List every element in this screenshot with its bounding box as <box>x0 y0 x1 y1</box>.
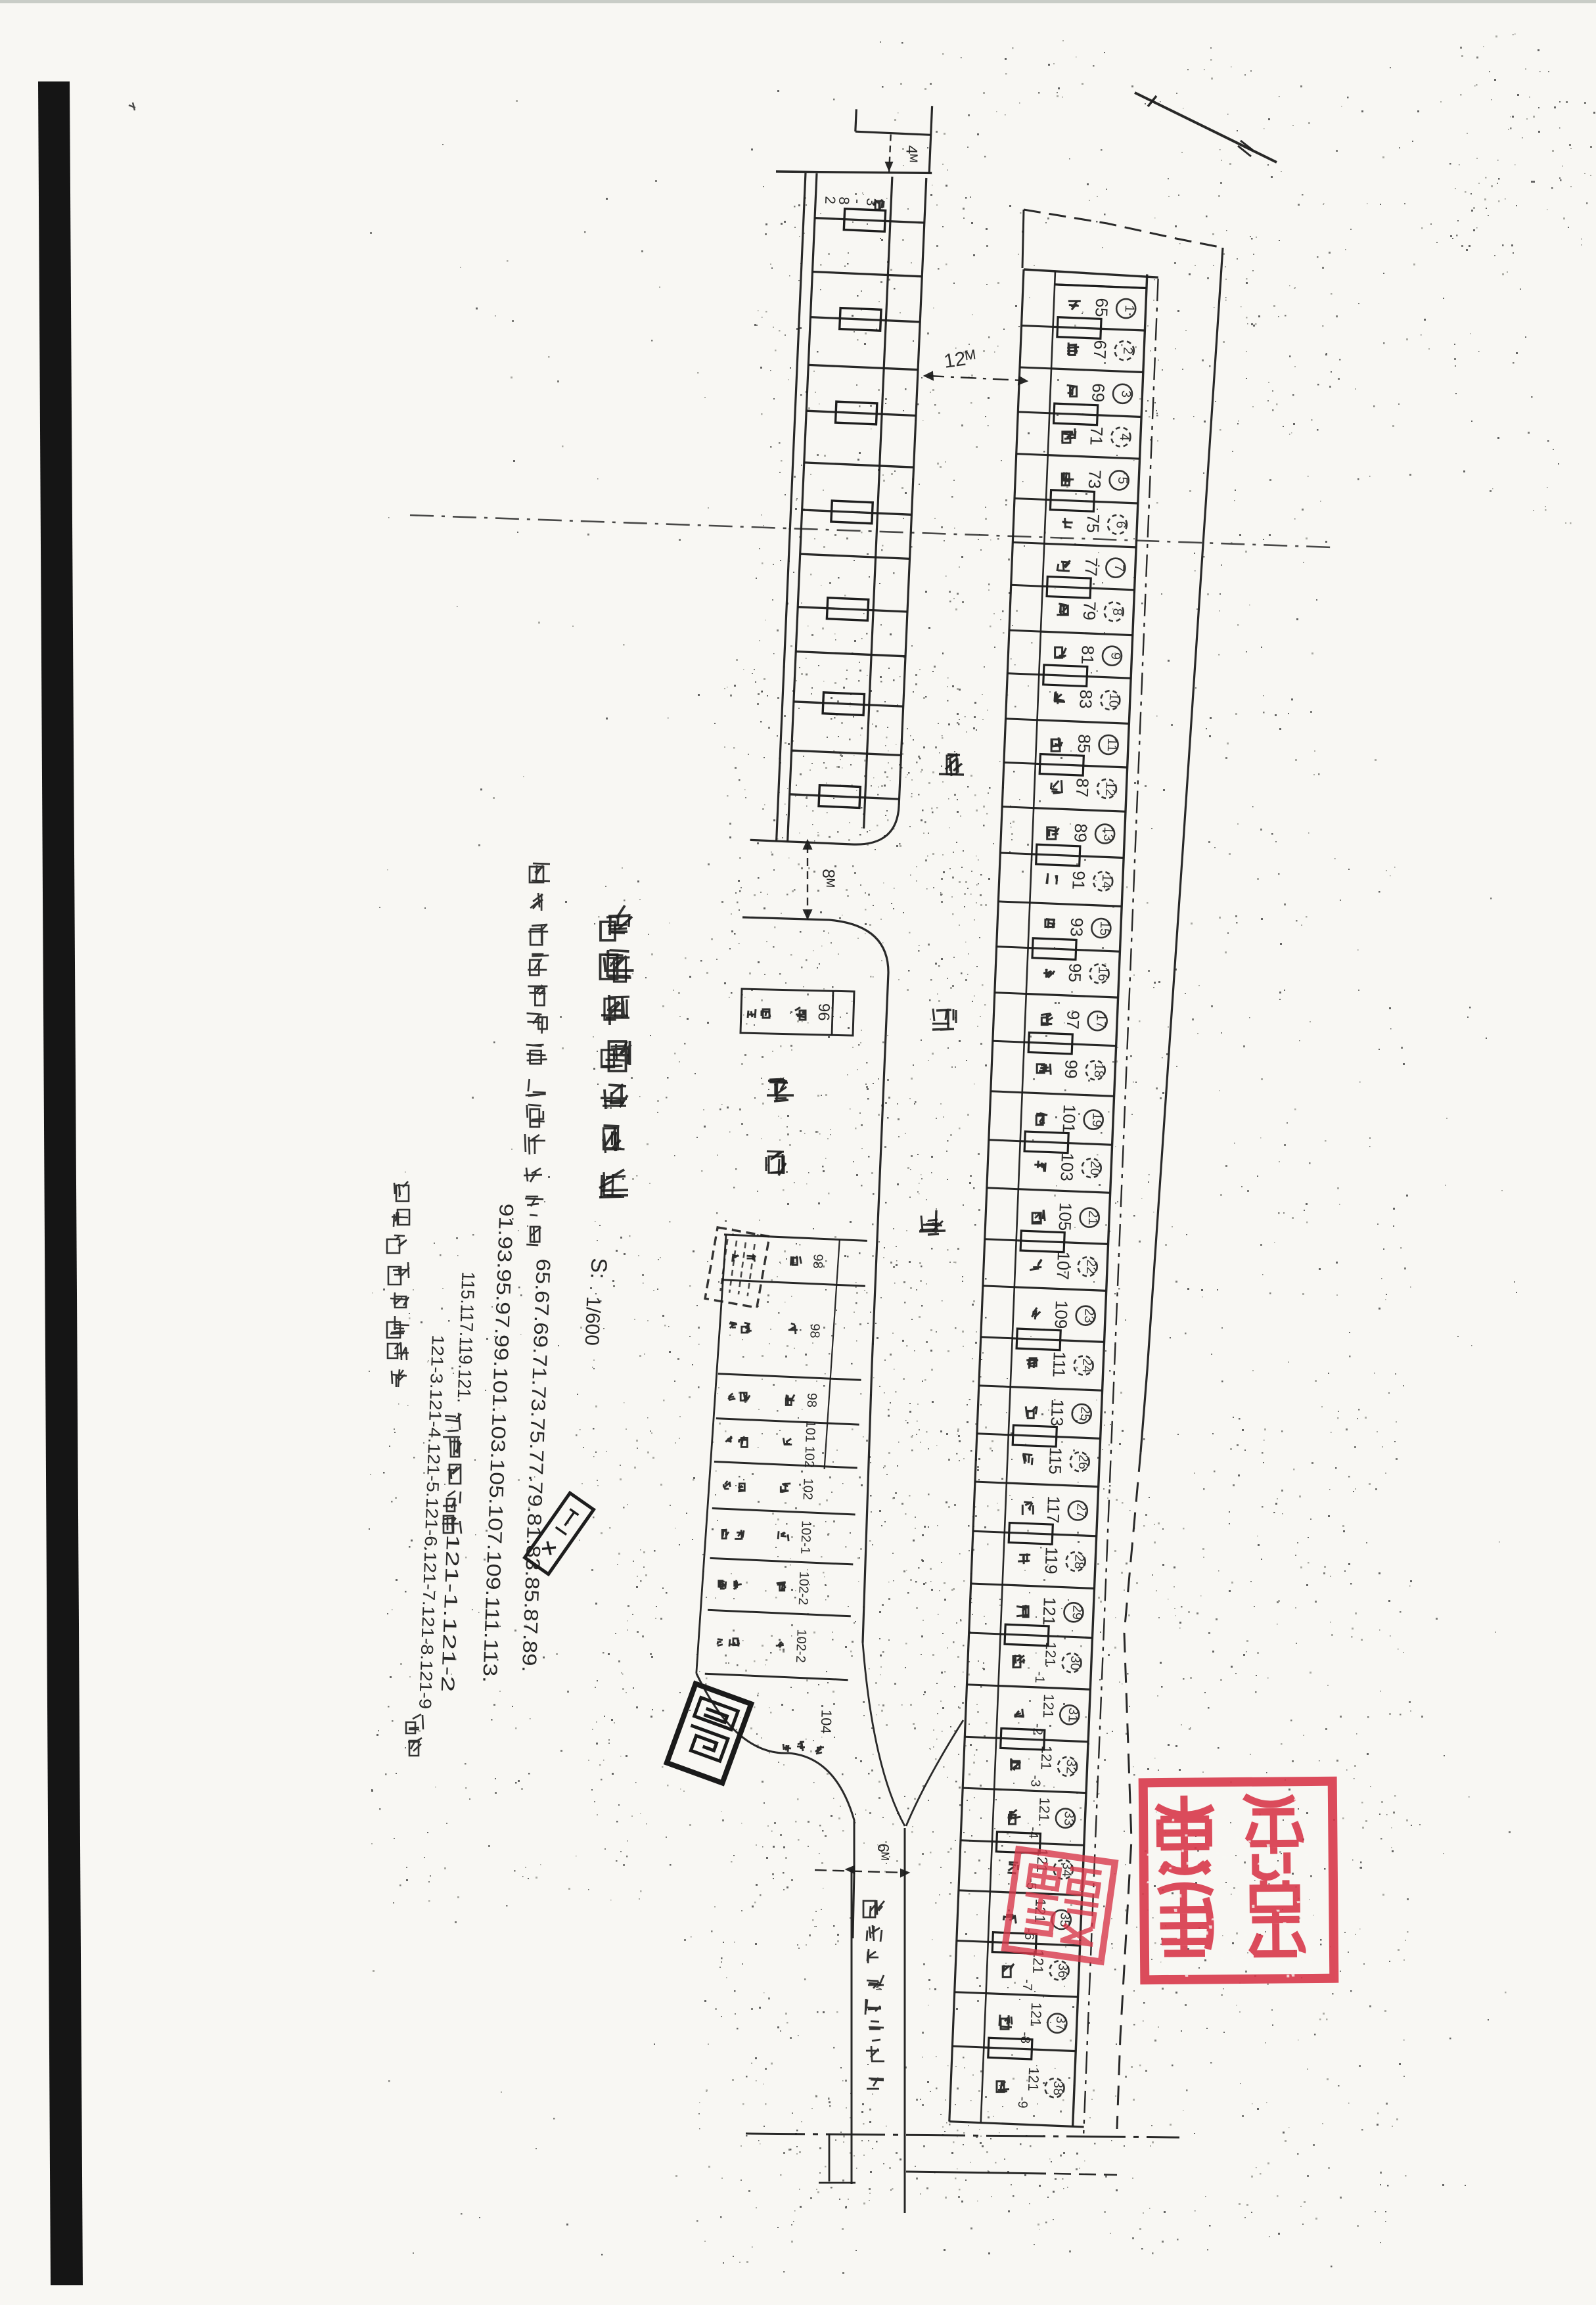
svg-text:121: 121 <box>1025 2067 1042 2092</box>
svg-text:98: 98 <box>804 1392 819 1407</box>
svg-text:19: 19 <box>1089 1112 1105 1128</box>
svg-text:25: 25 <box>1078 1406 1093 1421</box>
svg-text:S:: S: <box>585 1258 611 1279</box>
svg-text:12ᴹ: 12ᴹ <box>942 346 977 372</box>
svg-text:29: 29 <box>1070 1605 1085 1620</box>
svg-text:77: 77 <box>1081 557 1101 577</box>
svg-text:121: 121 <box>1036 1797 1053 1822</box>
svg-text:37: 37 <box>1053 2016 1068 2031</box>
svg-text:69: 69 <box>1088 383 1108 403</box>
svg-text:14: 14 <box>1099 874 1114 889</box>
svg-text:30: 30 <box>1068 1655 1083 1670</box>
svg-text:98: 98 <box>807 1323 822 1338</box>
svg-text:23: 23 <box>1082 1308 1097 1323</box>
svg-text:71: 71 <box>1086 426 1106 446</box>
svg-text:17: 17 <box>1093 1013 1108 1028</box>
svg-text:107: 107 <box>1053 1251 1073 1280</box>
svg-text:119: 119 <box>1041 1547 1061 1574</box>
svg-text:38: 38 <box>1051 2080 1066 2095</box>
svg-text:95: 95 <box>1065 963 1085 982</box>
svg-text:36: 36 <box>1055 1963 1070 1978</box>
svg-text:121: 121 <box>1040 1694 1057 1719</box>
svg-text:20: 20 <box>1087 1160 1103 1175</box>
svg-text:-7: -7 <box>1020 1979 1035 1992</box>
svg-text:103: 103 <box>1057 1152 1077 1181</box>
svg-text:26: 26 <box>1076 1454 1091 1469</box>
svg-text:91: 91 <box>1068 871 1089 890</box>
svg-text:99: 99 <box>1061 1059 1082 1079</box>
svg-text:8: 8 <box>1110 608 1124 616</box>
svg-text:31: 31 <box>1065 1708 1080 1723</box>
svg-text:93: 93 <box>1066 917 1087 937</box>
svg-text:83: 83 <box>1076 689 1096 709</box>
svg-text:98: 98 <box>810 1254 825 1269</box>
svg-text:18: 18 <box>1091 1063 1106 1078</box>
svg-text:22: 22 <box>1083 1259 1099 1274</box>
svg-text:6ᴹ: 6ᴹ <box>874 1843 892 1861</box>
svg-text:117: 117 <box>1043 1495 1064 1523</box>
svg-text:21: 21 <box>1085 1210 1101 1225</box>
svg-text:13: 13 <box>1101 827 1116 842</box>
svg-text:24: 24 <box>1080 1358 1095 1373</box>
svg-text:7: 7 <box>1112 564 1126 572</box>
svg-text:-3: -3 <box>1028 1775 1043 1787</box>
svg-text:6: 6 <box>1113 521 1128 529</box>
svg-text:105: 105 <box>1055 1202 1075 1231</box>
svg-text:-1: -1 <box>1032 1671 1047 1683</box>
svg-text:96: 96 <box>815 1003 833 1021</box>
svg-text:79: 79 <box>1080 601 1100 621</box>
svg-text:85: 85 <box>1074 734 1095 754</box>
svg-text:113: 113 <box>1047 1399 1067 1426</box>
svg-text:2: 2 <box>1120 347 1135 355</box>
svg-text:1/600: 1/600 <box>581 1296 604 1346</box>
svg-text:121: 121 <box>1039 1597 1059 1626</box>
svg-text:89: 89 <box>1070 823 1091 843</box>
svg-text:109: 109 <box>1051 1300 1071 1329</box>
svg-text:115: 115 <box>1045 1447 1066 1474</box>
svg-text:75: 75 <box>1083 514 1103 534</box>
svg-text:16: 16 <box>1095 967 1110 982</box>
svg-text:4: 4 <box>1117 433 1131 441</box>
svg-text:-4: -4 <box>1026 1827 1041 1839</box>
svg-text:28: 28 <box>1072 1554 1087 1569</box>
svg-text:33: 33 <box>1061 1811 1076 1826</box>
svg-text:87: 87 <box>1072 778 1093 798</box>
svg-text:3: 3 <box>1118 390 1133 398</box>
svg-text:101: 101 <box>1059 1104 1079 1133</box>
svg-text:67: 67 <box>1090 340 1110 359</box>
svg-text:102: 102 <box>800 1478 815 1500</box>
svg-text:32: 32 <box>1063 1759 1078 1774</box>
svg-text:ᴹ: ᴹ <box>871 1984 884 1990</box>
svg-text:73: 73 <box>1085 469 1105 489</box>
svg-text:81: 81 <box>1078 645 1098 665</box>
svg-text:11: 11 <box>1105 738 1120 752</box>
svg-text:102-2: 102-2 <box>796 1571 811 1605</box>
svg-text:102-1: 102-1 <box>798 1520 813 1555</box>
svg-text:101 102: 101 102 <box>802 1420 818 1468</box>
svg-text:121: 121 <box>1037 1745 1055 1770</box>
svg-text:1: 1 <box>1122 305 1137 313</box>
svg-text:102-2: 102-2 <box>793 1629 809 1663</box>
svg-text:-2: -2 <box>1030 1723 1045 1736</box>
svg-text:111: 111 <box>1049 1351 1070 1378</box>
svg-text:104: 104 <box>817 1709 834 1734</box>
svg-text:-9: -9 <box>1015 2096 1030 2109</box>
svg-text:10: 10 <box>1106 693 1121 708</box>
svg-text:8ᴹ: 8ᴹ <box>819 869 839 888</box>
svg-text:-8: -8 <box>1018 2032 1033 2044</box>
svg-text:27: 27 <box>1074 1503 1089 1518</box>
svg-text:5: 5 <box>1115 476 1129 484</box>
svg-text:15: 15 <box>1097 921 1112 936</box>
svg-text:65: 65 <box>1091 298 1112 317</box>
svg-text:121: 121 <box>1042 1642 1059 1667</box>
svg-text:9: 9 <box>1108 652 1122 660</box>
svg-text:121: 121 <box>1028 2002 1045 2027</box>
svg-text:12: 12 <box>1103 781 1118 796</box>
svg-text:97: 97 <box>1063 1010 1083 1030</box>
svg-text:4ᴹ: 4ᴹ <box>902 145 921 163</box>
